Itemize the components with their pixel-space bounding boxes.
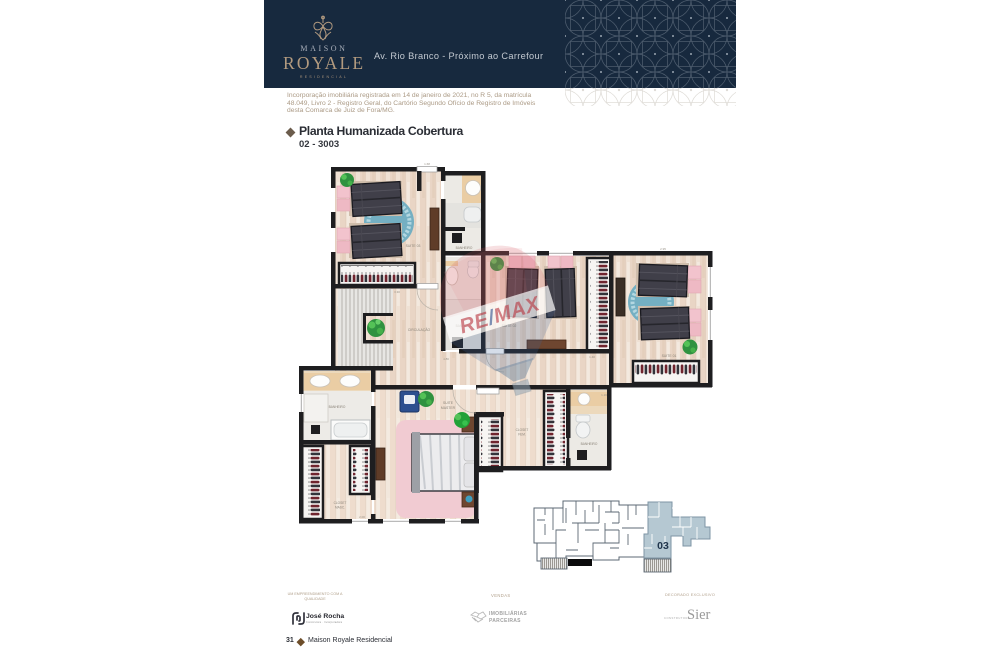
svg-text:1.16: 1.16 [601,393,607,397]
svg-text:1.68: 1.68 [424,162,430,166]
svg-text:SUITE 01: SUITE 01 [662,354,677,358]
svg-text:CLOSET: CLOSET [516,428,529,432]
svg-text:MASTER: MASTER [441,406,456,410]
svg-text:BANHEIRO: BANHEIRO [329,405,346,409]
svg-text:CLOSET: CLOSET [334,501,347,505]
svg-text:2.00: 2.00 [359,515,365,519]
svg-text:CIRCULAÇÃO: CIRCULAÇÃO [408,327,431,332]
svg-text:3.30: 3.30 [394,290,400,294]
svg-text:03: 03 [657,540,669,552]
svg-text:BANHEIRO: BANHEIRO [456,246,473,250]
svg-text:SUITE: SUITE [443,401,454,405]
svg-text:MASC.: MASC. [335,506,345,510]
svg-text:4.80: 4.80 [443,357,449,361]
svg-text:2.95: 2.95 [660,247,666,251]
svg-text:SUITE 03: SUITE 03 [406,244,421,248]
svg-text:1.40: 1.40 [589,355,595,359]
svg-text:FEM.: FEM. [518,433,526,437]
svg-text:BANHEIRO: BANHEIRO [581,442,598,446]
